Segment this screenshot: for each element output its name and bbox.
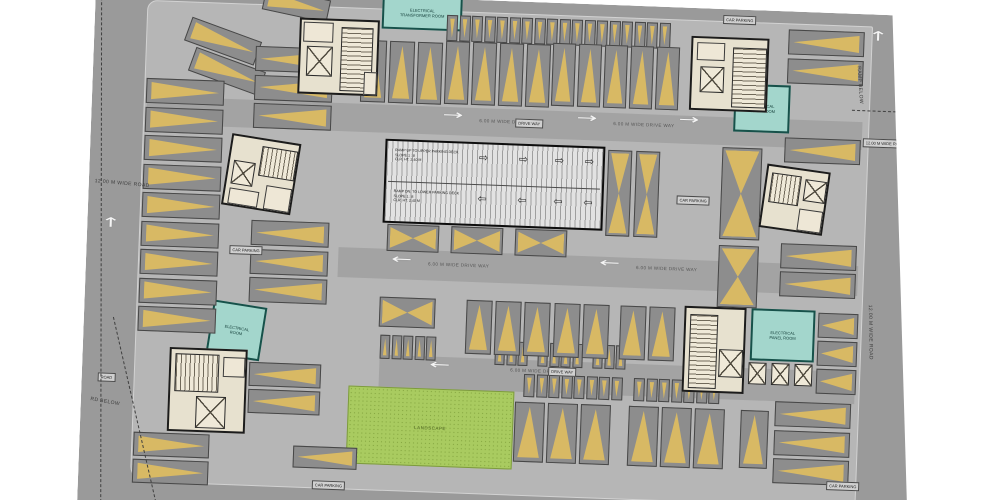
- plan-label-chip: CAR PARKING: [229, 245, 263, 255]
- floor-plan-page: RAMP UP TO UPPER PARKING DECKSLOPE 1 : 8…: [0, 0, 994, 500]
- staircase: [174, 353, 219, 393]
- plan-label-chip: 12.00 M WIDE ROAD: [863, 138, 908, 149]
- car-parking-stall: [514, 229, 567, 258]
- electrical-panel-room-bottom-right: ELECTRICALPANEL ROOM: [750, 308, 816, 362]
- stall-triangle: [782, 274, 853, 296]
- stall-triangle: [146, 166, 219, 188]
- stall-triangle: [394, 338, 399, 356]
- traffic-arrow-icon: ←: [599, 259, 620, 270]
- ramp-up-arrow-icon: ⇨: [479, 151, 489, 164]
- stair-lift-core: [758, 164, 830, 236]
- stair-lift-core: [167, 347, 248, 434]
- stall-triangle: [518, 232, 542, 254]
- stall-triangle: [599, 23, 605, 43]
- ramp-down-arrow-icon: ⇦: [517, 194, 527, 207]
- car-parking-stall: [141, 220, 220, 248]
- stall-triangle: [516, 405, 542, 460]
- car-parking-stall: [251, 220, 330, 248]
- traffic-arrow-icon: →: [678, 115, 699, 126]
- stall-triangle: [632, 49, 651, 107]
- car-parking-stall: [139, 249, 218, 277]
- stall-triangle: [614, 380, 620, 397]
- stall-triangle: [775, 461, 846, 483]
- stall-triangle: [612, 24, 618, 44]
- staircase: [731, 47, 767, 108]
- stall-triangle: [537, 21, 543, 41]
- car-parking-stall: [138, 277, 217, 305]
- ramp-up-text: RAMP UP TO UPPER PARKING DECKSLOPE 1 : 8…: [395, 148, 473, 165]
- road-label: 12.00 M WIDE ROAD: [867, 305, 874, 360]
- stall-triangle: [512, 20, 518, 40]
- car-parking-stall: [579, 404, 611, 465]
- car-parking-stall: [551, 43, 576, 107]
- stall-triangle: [720, 276, 755, 305]
- car-parking-stall: [739, 410, 769, 469]
- car-parking-stall: [523, 302, 551, 357]
- bike-parking-stall: [523, 374, 535, 397]
- stall-triangle: [540, 232, 564, 254]
- stall-triangle: [777, 404, 848, 426]
- stall-triangle: [499, 20, 505, 40]
- car-parking-stall: [444, 41, 470, 105]
- car-parking-stall: [774, 401, 851, 429]
- bike-parking-stall: [534, 18, 546, 44]
- car-parking-stall: [144, 135, 223, 163]
- core-room: [363, 72, 377, 95]
- stall-triangle: [582, 407, 608, 462]
- landscape-area: LANDSCAPE: [346, 386, 515, 470]
- car-parking-stall: [605, 150, 632, 237]
- bike-parking-stall: [598, 377, 610, 400]
- core-room: [796, 209, 823, 234]
- plan-label-chip: DRIVE WAY: [548, 367, 576, 377]
- bike-parking-stall: [571, 19, 583, 45]
- bike-parking-stall: [446, 15, 458, 41]
- car-parking-stall: [498, 43, 524, 107]
- bike-parking-stall: [611, 377, 623, 400]
- car-parking-stall: [582, 304, 610, 359]
- bike-parking-stall: [559, 19, 571, 45]
- stall-triangle: [252, 280, 325, 302]
- stall-triangle: [462, 18, 468, 38]
- car-parking-stall: [818, 313, 859, 339]
- stall-triangle: [149, 81, 222, 103]
- stall-triangle: [606, 48, 625, 106]
- car-parking-stall: [655, 47, 680, 111]
- traffic-arrow-icon: ←: [391, 255, 412, 266]
- stall-triangle: [487, 19, 493, 39]
- car-parking-stall: [248, 362, 321, 389]
- stall-triangle: [145, 195, 218, 217]
- stall-triangle: [638, 154, 657, 195]
- stall-triangle: [256, 106, 329, 128]
- car-parking-stall: [633, 151, 660, 238]
- ramp-up-arrow-icon: ⇨: [519, 153, 529, 166]
- ramp-up-arrow-icon: ⇨: [585, 155, 595, 168]
- stall-triangle: [790, 61, 861, 83]
- stall-triangle: [144, 223, 217, 245]
- stall-triangle: [296, 449, 355, 467]
- stall-triangle: [253, 251, 326, 273]
- site-plan: RAMP UP TO UPPER PARKING DECKSLOPE 1 : 8…: [77, 0, 928, 500]
- traffic-arrow-icon: →: [442, 111, 463, 122]
- car-parking-stall: [780, 243, 857, 271]
- stall-triangle: [783, 246, 854, 268]
- stair-lift-core: [221, 133, 302, 215]
- stall-triangle: [776, 433, 847, 455]
- stall-triangle: [551, 378, 557, 395]
- lift-shaft: [700, 66, 725, 93]
- stall-triangle: [135, 462, 206, 483]
- stair-lift-core: [682, 306, 747, 394]
- stall-triangle: [624, 24, 630, 44]
- car-parking-stall: [619, 305, 647, 360]
- car-parking-stall: [247, 389, 320, 416]
- bike-parking-stall: [659, 23, 671, 49]
- stall-triangle: [497, 304, 519, 353]
- traffic-arrow-icon: ↑: [868, 32, 889, 43]
- car-parking-stall: [779, 271, 856, 299]
- stall-triangle: [791, 33, 862, 55]
- car-parking-stall: [629, 46, 654, 110]
- stall-triangle: [407, 301, 433, 326]
- stall-triangle: [601, 380, 607, 397]
- bike-parking-stall: [573, 376, 585, 399]
- stall-triangle: [696, 411, 722, 466]
- traffic-arrow-icon: ↑: [100, 218, 121, 229]
- stall-triangle: [651, 310, 673, 359]
- lift-shaft: [771, 363, 790, 386]
- core-room: [263, 185, 292, 213]
- stall-triangle: [574, 23, 580, 43]
- car-parking-stall: [787, 58, 864, 86]
- stall-triangle: [554, 46, 573, 104]
- staircase: [768, 172, 802, 206]
- ramp-up-arrow-icon: ⇨: [555, 154, 565, 167]
- ramp-down-arrow-icon: ⇦: [553, 195, 563, 208]
- car-parking-stall: [416, 42, 443, 105]
- stall-triangle: [254, 223, 327, 245]
- car-parking-stall: [525, 44, 551, 108]
- stall-triangle: [391, 44, 412, 101]
- car-parking-stall: [471, 42, 497, 106]
- lift-shaft: [195, 396, 226, 429]
- stall-triangle: [477, 230, 501, 252]
- stall-triangle: [821, 316, 856, 336]
- bike-parking-stall: [380, 335, 391, 359]
- stall-triangle: [449, 18, 455, 38]
- car-parking-stall: [142, 192, 221, 220]
- stall-triangle: [674, 382, 680, 399]
- stall-triangle: [251, 392, 318, 412]
- car-parking-stall: [817, 341, 858, 367]
- stall-triangle: [580, 47, 599, 105]
- stall-triangle: [474, 19, 480, 39]
- bike-parking-stall: [536, 374, 548, 397]
- bike-parking-stall: [658, 379, 670, 402]
- car-parking-stall: [465, 300, 493, 355]
- stall-triangle: [636, 194, 655, 235]
- car-parking-stall: [816, 369, 857, 395]
- lift-shaft: [748, 362, 767, 385]
- site-boundary-line: [911, 166, 925, 500]
- car-parking-stall: [627, 406, 659, 467]
- bike-parking-stall: [646, 378, 658, 401]
- staircase: [688, 314, 719, 389]
- bike-parking-stall: [484, 16, 496, 42]
- site-boundary-line: [900, 20, 916, 169]
- stall-triangle: [587, 23, 593, 43]
- bike-parking-stall: [414, 336, 425, 360]
- ramp-lane-up: RAMP UP TO UPPER PARKING DECKSLOPE 1 : 8…: [386, 144, 603, 186]
- car-parking-stall: [546, 403, 578, 464]
- car-parking-stall: [249, 277, 328, 305]
- stall-triangle: [549, 22, 555, 42]
- stall-triangle: [383, 338, 388, 356]
- stall-triangle: [252, 365, 319, 385]
- bike-parking-stall: [471, 16, 483, 42]
- car-parking-stall: [132, 459, 209, 486]
- stall-triangle: [526, 305, 548, 354]
- stall-triangle: [528, 47, 548, 105]
- ramp-lane-down: RAMP DN. TO LOWER PARKING DECKSLOPE 1 : …: [385, 185, 602, 227]
- stall-triangle: [447, 44, 467, 102]
- bike-parking-stall: [561, 375, 573, 398]
- stall-triangle: [539, 378, 545, 395]
- car-parking-stall: [143, 163, 222, 191]
- bike-parking-stall: [621, 21, 633, 47]
- bike-parking-stall: [459, 15, 471, 41]
- stall-triangle: [662, 26, 668, 46]
- stall-triangle: [429, 339, 434, 357]
- stall-triangle: [820, 344, 855, 364]
- bike-parking-stall: [391, 335, 402, 359]
- car-parking-stall: [379, 297, 436, 329]
- car-parking-stall: [577, 44, 602, 108]
- bike-parking-stall: [646, 22, 658, 48]
- landscape-label: LANDSCAPE: [414, 424, 446, 430]
- car-parking-stall: [660, 407, 692, 468]
- bike-parking-stall: [509, 17, 521, 43]
- lift-shaft: [306, 46, 333, 77]
- plan-label-chip: CAR PARKING: [723, 15, 757, 25]
- stall-triangle: [636, 381, 642, 398]
- lift-shaft: [230, 160, 256, 187]
- car-parking-stall: [137, 306, 216, 334]
- stall-triangle: [610, 153, 629, 194]
- stall-triangle: [147, 138, 220, 160]
- stall-triangle: [742, 413, 766, 466]
- stall-triangle: [722, 193, 758, 237]
- bike-parking-stall: [634, 22, 646, 48]
- car-parking-stall: [784, 137, 861, 165]
- car-parking-stall: [146, 78, 225, 106]
- car-parking-stall: [388, 41, 415, 104]
- traffic-arrow-icon: ←: [429, 360, 450, 371]
- ramp-down-arrow-icon: ⇦: [477, 192, 487, 205]
- stall-triangle: [787, 140, 858, 162]
- stall-triangle: [142, 280, 215, 302]
- lift-shaft: [803, 179, 828, 204]
- stall-triangle: [585, 307, 607, 356]
- stall-triangle: [724, 150, 760, 194]
- stall-triangle: [136, 435, 207, 456]
- stall-triangle: [658, 50, 677, 108]
- lift-shaft: [794, 364, 813, 387]
- car-parking-stall: [145, 106, 224, 134]
- stall-triangle: [819, 372, 854, 392]
- stall-triangle: [637, 25, 643, 45]
- bike-parking-stall: [403, 335, 414, 359]
- stall-triangle: [501, 46, 521, 104]
- stall-triangle: [622, 309, 644, 358]
- core-room: [227, 187, 259, 208]
- car-parking-stall: [788, 29, 865, 57]
- car-parking-stall: [693, 408, 725, 469]
- stall-triangle: [549, 406, 575, 461]
- stall-triangle: [556, 306, 578, 355]
- car-parking-stall: [553, 303, 581, 358]
- bike-parking-stall: [548, 375, 560, 398]
- stall-triangle: [419, 45, 440, 102]
- stall-triangle: [589, 379, 595, 396]
- stall-triangle: [454, 229, 478, 251]
- core-room: [303, 22, 334, 43]
- plan-label-chip: DRIVE WAY: [515, 118, 543, 128]
- stall-triangle: [649, 382, 655, 399]
- car-parking-stall: [648, 307, 676, 362]
- bike-parking-stall: [633, 378, 645, 401]
- car-parking-stall: [253, 103, 332, 131]
- stall-triangle: [630, 409, 656, 464]
- stall-triangle: [564, 378, 570, 395]
- stall-triangle: [417, 339, 422, 357]
- car-parking-stall: [773, 430, 850, 458]
- stall-triangle: [524, 21, 530, 41]
- stall-triangle: [608, 193, 627, 234]
- stall-triangle: [576, 379, 582, 396]
- core-room: [697, 42, 726, 61]
- bike-parking-stall: [584, 20, 596, 46]
- car-parking-stall: [494, 301, 522, 356]
- car-parking-stall: [717, 245, 759, 308]
- stall-triangle: [649, 25, 655, 45]
- bike-parking-stall: [496, 17, 508, 43]
- stall-triangle: [148, 110, 221, 132]
- plan-label-chip: CAR PARKING: [312, 480, 346, 490]
- ramp-down-arrow-icon: ⇦: [583, 196, 593, 209]
- plan-label-chip: CAR PARKING: [676, 195, 710, 205]
- plan-label-chip: CAR PARKING: [826, 481, 860, 491]
- stall-triangle: [143, 252, 216, 274]
- bike-parking-stall: [586, 376, 598, 399]
- stall-triangle: [413, 228, 437, 250]
- stall-triangle: [382, 300, 408, 325]
- staircase: [258, 146, 298, 181]
- central-ramp: RAMP UP TO UPPER PARKING DECKSLOPE 1 : 8…: [383, 139, 606, 231]
- ramp-down-text: RAMP DN. TO LOWER PARKING DECKSLOPE 1 : …: [393, 189, 471, 206]
- bike-parking-stall: [521, 18, 533, 44]
- traffic-arrow-icon: →: [576, 114, 597, 125]
- car-parking-stall: [450, 226, 503, 255]
- bike-parking-stall: [596, 20, 608, 46]
- stall-triangle: [661, 382, 667, 399]
- stall-triangle: [562, 22, 568, 42]
- road-label: RD BELOW: [90, 396, 120, 407]
- car-parking-stall: [603, 45, 628, 109]
- car-parking-stall: [292, 446, 357, 470]
- car-parking-stall: [513, 402, 545, 463]
- bike-parking-stall: [546, 19, 558, 45]
- stall-triangle: [390, 227, 414, 249]
- core-room: [223, 357, 246, 378]
- stair-lift-core: [689, 36, 770, 113]
- car-parking-stall: [386, 224, 439, 253]
- stall-triangle: [474, 45, 494, 103]
- stall-triangle: [526, 377, 532, 394]
- stall-triangle: [406, 339, 411, 357]
- car-parking-stall: [719, 147, 762, 240]
- site-boundary-line: [100, 0, 102, 500]
- lift-shaft: [718, 349, 743, 378]
- bike-parking-stall: [609, 21, 621, 47]
- stall-triangle: [141, 309, 214, 331]
- stall-triangle: [663, 410, 689, 465]
- stair-lift-core: [297, 17, 380, 96]
- stall-triangle: [721, 248, 756, 277]
- stall-triangle: [468, 303, 490, 352]
